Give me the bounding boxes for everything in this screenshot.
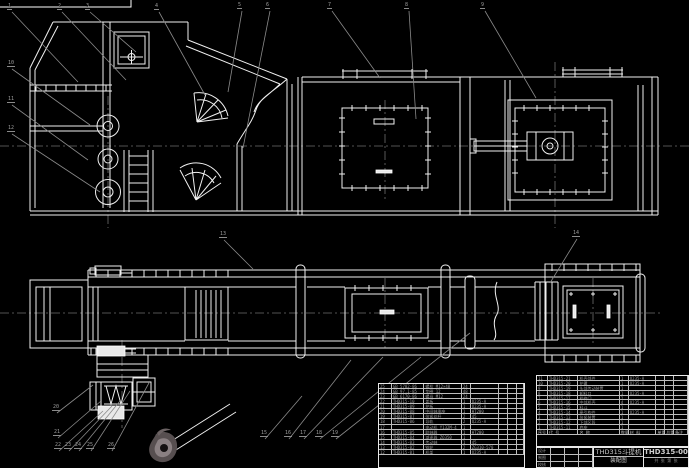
bom-header-cell: 单重: [656, 430, 665, 434]
bom-cell: [674, 415, 688, 419]
bom-cell: 8: [537, 391, 548, 395]
bom-row: 12THD315-01机架1Q235-A: [379, 450, 524, 455]
bom-cell: [499, 435, 508, 439]
bom-cell: [656, 425, 665, 429]
signature-label: 制图: [537, 455, 551, 461]
callout-19: 19: [331, 431, 339, 437]
bom-cell: [517, 440, 524, 444]
bom-cell: 盖板: [424, 399, 461, 403]
bom-cell: [656, 400, 665, 404]
bom-cell: THD315-21: [548, 376, 579, 380]
bom-cell: [674, 381, 688, 385]
bom-cell: Q235-A: [629, 400, 657, 404]
bom-cell: [517, 389, 524, 393]
bom-cell: 25: [379, 384, 392, 388]
bom-cell: HT200: [471, 409, 500, 413]
bom-cell: [517, 445, 524, 449]
bom-cell: 1: [620, 405, 629, 409]
bom-cell: Q235-A: [471, 450, 500, 454]
elevation-view: [30, 22, 658, 215]
signature-blank: [565, 462, 579, 468]
bom-cell: 张紧丝杆: [424, 414, 461, 418]
signature-label: 校核: [537, 462, 551, 468]
bom-cell: HT200: [471, 430, 500, 434]
bom-cell: [517, 425, 524, 429]
bom-cell: 24: [462, 384, 471, 388]
bom-cell: [499, 440, 508, 444]
bom-cell: [499, 419, 508, 423]
bom-cell: ZG310-570: [471, 445, 500, 449]
bom-cell: 1: [462, 440, 471, 444]
bom-cell: [674, 410, 688, 414]
bom-cell: 中间轴承座: [424, 409, 461, 413]
bom-cell: 减速器 ZQ350: [424, 435, 461, 439]
callout-8: 8: [404, 3, 409, 9]
bom-cell: 1: [620, 420, 629, 424]
bom-cell: 18: [379, 419, 392, 423]
bom-cell: THD315-12: [548, 420, 579, 424]
bom-cell: 1: [462, 399, 471, 403]
bom-cell: 19: [379, 414, 392, 418]
sheet-frame-corner: [0, 0, 131, 7]
callout-23: 23: [64, 443, 72, 449]
bom-cell: [517, 430, 524, 434]
bom-cell: 张紧装置: [578, 415, 619, 419]
bom-cell: Q235-A: [629, 376, 657, 380]
bom-cell: 料斗: [578, 405, 619, 409]
signature-blank: [565, 448, 579, 454]
bom-cell: 1: [620, 391, 629, 395]
bom-cell: THD315-10: [392, 399, 425, 403]
bom-cell: [656, 391, 665, 395]
bom-cell: THD315-07: [392, 414, 425, 418]
bom-cell: 联轴器: [424, 430, 461, 434]
bom-cell: Q235-A: [471, 399, 500, 403]
callout-13: 13: [219, 232, 227, 238]
bom-cell: [656, 376, 665, 380]
bom-cell: 1: [620, 425, 629, 429]
bom-cell: 螺母 M12: [424, 394, 461, 398]
callout-10: 10: [7, 61, 15, 67]
drive-unit: [90, 355, 155, 419]
bom-cell: 螺栓 M12×40: [424, 384, 461, 388]
bom-cell: 45: [471, 414, 500, 418]
bom-cell: [471, 384, 500, 388]
bom-cell: [517, 409, 524, 413]
bom-cell: [674, 391, 688, 395]
callout-4: 4: [154, 4, 159, 10]
drawing-title: THD315斗提机: [594, 448, 643, 457]
bom-cell: THD315-02: [392, 445, 425, 449]
bom-cell: [392, 425, 425, 429]
bom-cell: [517, 404, 524, 408]
signature-row: 设计: [537, 448, 593, 455]
signature-blank: [551, 448, 565, 454]
callout-25: 25: [86, 443, 94, 449]
bom-cell: THD315-06: [392, 419, 425, 423]
bom-cell: [508, 409, 517, 413]
signature-blank: [579, 462, 593, 468]
bom-cell: 24: [462, 394, 471, 398]
bom-cell: [656, 386, 665, 390]
bom-cell: Q235-A: [471, 419, 500, 423]
bom-cell: THD315-15: [548, 405, 579, 409]
bom-cell: 2: [462, 445, 471, 449]
boot-plan-panel: [185, 287, 228, 340]
bom-cell: 机壳部件: [578, 376, 619, 380]
bom-cell: GB 97.1-85: [392, 389, 425, 393]
bom-cell: [629, 415, 657, 419]
callout-7: 7: [327, 3, 332, 9]
bom-cell: THD315-04: [392, 435, 425, 439]
bom-cell: 20: [379, 409, 392, 413]
callout-22: 22: [54, 443, 62, 449]
signature-grid: 设计制图校核: [537, 448, 594, 467]
callout-3: 3: [85, 4, 90, 10]
bom-cell: [508, 404, 517, 408]
bom-cell: [517, 399, 524, 403]
bom-cell: [656, 405, 665, 409]
bom-cell: 1: [620, 386, 629, 390]
bom-cell: [674, 396, 688, 400]
bom-cell: 9: [537, 386, 548, 390]
bom-cell: THD315-19: [548, 386, 579, 390]
bom-cell: [508, 384, 517, 388]
bom-cell: [665, 386, 674, 390]
bom-cell: 检修门: [578, 396, 619, 400]
bom-cell: THD315-13: [548, 415, 579, 419]
bom-cell: 3: [537, 415, 548, 419]
bom-cell: [517, 450, 524, 454]
bom-table-right: 11THD315-21机壳部件1Q235-A 10THD315-20护罩1Q23…: [536, 375, 689, 447]
bom-cell: [665, 396, 674, 400]
bom-cell: [656, 420, 665, 424]
bom-cell: [508, 394, 517, 398]
bom-cell: THD315-11: [548, 425, 579, 429]
bom-header-cell: 序号: [537, 430, 548, 434]
bom-cell: 14: [379, 440, 392, 444]
bom-cell: [629, 386, 657, 390]
bom-cell: 2: [537, 420, 548, 424]
bom-cell: 1: [462, 409, 471, 413]
bom-cell: THD315-09: [392, 404, 425, 408]
bom-cell: 4: [620, 400, 629, 404]
bom-cell: 7: [537, 396, 548, 400]
drawing-number: THD315-00: [644, 448, 688, 458]
callout-17: 17: [299, 431, 307, 437]
sheet-note: 共 张 第 张: [644, 458, 688, 464]
bom-cell: [665, 391, 674, 395]
head-housing: [508, 100, 612, 200]
bom-cell: 16: [379, 430, 392, 434]
bom-cell: 1: [537, 425, 548, 429]
bom-cell: [499, 430, 508, 434]
callout-1: 1: [7, 4, 12, 10]
bom-cell: 22: [379, 399, 392, 403]
bom-cell: 导轨: [424, 419, 461, 423]
bom-cell: 护板: [424, 404, 461, 408]
bom-cell: [665, 405, 674, 409]
number-cell: THD315-00 共 张 第 张: [644, 448, 688, 467]
bom-cell: [508, 435, 517, 439]
signature-blank: [551, 455, 565, 461]
bom-cell: [629, 420, 657, 424]
bom-cell: 5: [537, 405, 548, 409]
bom-cell: 10: [537, 381, 548, 385]
bom-cell: [499, 445, 508, 449]
bom-cell: 电动机 Y132M-4: [424, 425, 461, 429]
bom-cell: [665, 400, 674, 404]
bom-cell: [508, 445, 517, 449]
bom-cell: [665, 381, 674, 385]
bom-cell: [499, 450, 508, 454]
bom-header-cell: 备注: [674, 430, 688, 434]
callout-14: 14: [572, 231, 580, 237]
bom-cell: 17: [379, 425, 392, 429]
bom-cell: [508, 430, 517, 434]
bom-cell: THD315-05: [392, 430, 425, 434]
signature-blank: [565, 455, 579, 461]
bom-header-cell: 名 称: [578, 430, 619, 434]
bom-cell: 2: [620, 396, 629, 400]
bom-cell: 23: [379, 394, 392, 398]
signature-blank: [579, 455, 593, 461]
bom-cell: [674, 425, 688, 429]
title-block: 设计制图校核 THD315斗提机 装配图 THD315-00 共 张 第 张: [536, 447, 689, 468]
bom-header-cell: 材 料: [629, 430, 657, 434]
bom-cell: 底座: [578, 425, 619, 429]
bom-cell: 2: [462, 414, 471, 418]
bom-table-left: 25GB 5782-86螺栓 M12×4024 24GB 97.1-85垫圈 1…: [378, 383, 525, 468]
bom-cell: [499, 409, 508, 413]
bom-cell: [517, 384, 524, 388]
bom-cell: 牵引构件: [578, 410, 619, 414]
bom-cell: 11: [537, 376, 548, 380]
callout-2: 2: [57, 4, 62, 10]
callout-15: 15: [260, 431, 268, 437]
bom-cell: THD315-18: [548, 391, 579, 395]
bom-cell: [499, 404, 508, 408]
bom-cell: [656, 410, 665, 414]
bom-cell: 1: [462, 435, 471, 439]
signature-blank: [551, 462, 565, 468]
signature-row: 制图: [537, 455, 593, 462]
callout-11: 11: [7, 97, 15, 103]
callout-5: 5: [237, 3, 242, 9]
bom-cell: 1: [462, 450, 471, 454]
bom-cell: Q235-A: [629, 391, 657, 395]
bom-cell: [629, 405, 657, 409]
bom-cell: [499, 425, 508, 429]
bom-cell: [508, 389, 517, 393]
bom-cell: [499, 399, 508, 403]
watermark-logo: [149, 429, 177, 463]
callout-21: 21: [53, 430, 61, 436]
bom-cell: [508, 399, 517, 403]
bucket-lower: [180, 163, 221, 200]
bom-cell: [674, 420, 688, 424]
bom-cell: [674, 386, 688, 390]
bom-cell: [471, 435, 500, 439]
bom-cell: 12: [379, 450, 392, 454]
bom-cell: 4: [537, 410, 548, 414]
bom-cell: [508, 414, 517, 418]
bom-cell: 21: [379, 404, 392, 408]
bom-cell: Q235-A: [629, 381, 657, 385]
bom-cell: 1: [462, 425, 471, 429]
bom-cell: [471, 425, 500, 429]
bom-header-cell: 代 号: [548, 430, 579, 434]
bom-cell: 1: [462, 404, 471, 408]
title-cell: THD315斗提机 装配图: [594, 448, 644, 467]
bom-cell: Q235-A: [471, 404, 500, 408]
bom-cell: 6: [537, 400, 548, 404]
signature-blank: [579, 448, 593, 454]
bom-cell: [508, 425, 517, 429]
bom-cell: [656, 415, 665, 419]
bom-cell: 48: [462, 389, 471, 393]
bucket-upper: [194, 93, 228, 122]
bom-cell: [499, 394, 508, 398]
bom-cell: [665, 376, 674, 380]
bom-cell: 2: [462, 419, 471, 423]
bom-cell: 13: [379, 445, 392, 449]
bom-cell: [629, 396, 657, 400]
bom-cell: 垫圈 12: [424, 389, 461, 393]
bom-cell: [517, 435, 524, 439]
bom-cell: Q235-A: [629, 410, 657, 414]
bom-cell: [674, 405, 688, 409]
bom-cell: 15: [379, 435, 392, 439]
bom-cell: [508, 419, 517, 423]
bom-cell: 1: [620, 415, 629, 419]
bom-cell: [471, 389, 500, 393]
callout-16: 16: [284, 431, 292, 437]
bom-cell: [656, 396, 665, 400]
bom-header-cell: 数量: [620, 430, 629, 434]
bom-cell: [629, 425, 657, 429]
bom-cell: 1: [620, 410, 629, 414]
bom-cell: 中部机壳: [578, 400, 619, 404]
bom-cell: GB 6170-86: [392, 394, 425, 398]
callout-9: 9: [480, 3, 485, 9]
bom-cell: 链轮: [424, 445, 461, 449]
bom-cell: [674, 400, 688, 404]
bom-cell: THD315-16: [548, 400, 579, 404]
bom-cell: 下部区段: [578, 420, 619, 424]
bom-cell: [499, 414, 508, 418]
bom-header-cell: 总重: [665, 430, 674, 434]
bom-cell: 1: [620, 376, 629, 380]
bom-cell: [517, 394, 524, 398]
bom-cell: 头部传动装置: [578, 386, 619, 390]
callout-20: 20: [52, 405, 60, 411]
callout-24: 24: [74, 443, 82, 449]
bom-header-row: 序号代 号名 称数量材 料单重总重备注: [537, 430, 688, 435]
bom-cell: THD315-17: [548, 396, 579, 400]
bom-cell: 传动轴: [424, 440, 461, 444]
bom-cell: [499, 384, 508, 388]
bom-cell: THD315-20: [548, 381, 579, 385]
bom-cell: [517, 419, 524, 423]
bom-cell: [665, 415, 674, 419]
bom-cell: [665, 420, 674, 424]
bom-cell: [674, 376, 688, 380]
bom-cell: THD315-01: [392, 450, 425, 454]
bom-cell: 24: [379, 389, 392, 393]
bom-cell: [471, 394, 500, 398]
bom-cell: [517, 414, 524, 418]
bom-cell: 45: [471, 440, 500, 444]
bom-cell: THD315-14: [548, 410, 579, 414]
callout-12: 12: [7, 126, 15, 132]
signature-row: 校核: [537, 462, 593, 468]
bom-cell: THD315-08: [392, 409, 425, 413]
callout-6: 6: [265, 3, 270, 9]
bom-cell: 卸料口: [578, 391, 619, 395]
drawing-subtitle: 装配图: [594, 457, 643, 465]
bom-cell: GB 5782-86: [392, 384, 425, 388]
bom-cell: [665, 410, 674, 414]
signature-label: 设计: [537, 448, 551, 454]
bom-cell: [508, 440, 517, 444]
bom-cell: [656, 381, 665, 385]
bom-cell: 机架: [424, 450, 461, 454]
bom-cell: 护罩: [578, 381, 619, 385]
bom-cell: [499, 389, 508, 393]
bom-cell: THD315-03: [392, 440, 425, 444]
cad-sheet: 1234567891011121314151617181920212223242…: [0, 0, 689, 468]
bom-cell: 1: [620, 381, 629, 385]
bom-cell: [508, 450, 517, 454]
bom-cell: 1: [462, 430, 471, 434]
callout-26: 26: [107, 443, 115, 449]
bom-cell: [665, 425, 674, 429]
callout-18: 18: [315, 431, 323, 437]
